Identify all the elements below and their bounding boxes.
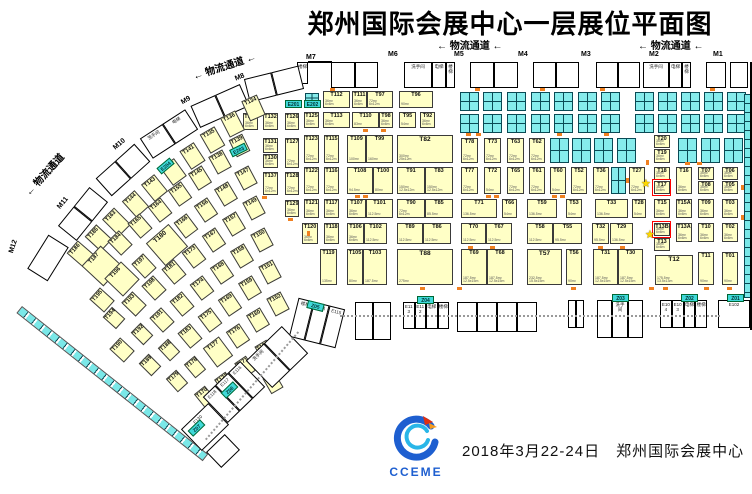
wall-room-cluster: 电梯 — [669, 62, 682, 88]
booth-t175[interactable]: T175 — [198, 307, 223, 333]
booth-t151[interactable]: T151 — [258, 259, 282, 284]
zone-badge-z03: Z03 — [612, 294, 629, 302]
standard-booth-block[interactable] — [594, 138, 613, 163]
booth-t176[interactable]: T176 — [226, 323, 250, 349]
room — [470, 62, 494, 88]
booth-t182[interactable]: T182 — [169, 291, 194, 317]
door-mark — [646, 160, 649, 165]
wall-room-cluster: 楼梯 — [682, 62, 691, 88]
logistics-channel-label: ← 物流通道 ← — [638, 37, 704, 52]
cceme-logo-text: CCEME — [388, 465, 444, 479]
room — [568, 300, 576, 328]
booth-t143[interactable]: T143 — [141, 174, 168, 202]
booth-t68[interactable]: T68187.5m² 12.5x15m — [487, 249, 513, 285]
booth-t178[interactable]: T178 — [184, 356, 206, 379]
room-cluster: E104E103电梯楼梯 — [660, 300, 707, 328]
standard-booth-block[interactable] — [635, 114, 654, 133]
booth-t72[interactable]: T7254m² — [484, 167, 501, 194]
booth-t125[interactable]: T12536m² 6x6m — [304, 112, 319, 128]
door-mark — [649, 287, 654, 290]
booth-t66[interactable]: T6654m² — [502, 199, 517, 218]
door-mark — [288, 218, 293, 221]
booth-t193[interactable]: T193 — [121, 291, 147, 316]
booth-t97[interactable]: T9772m² 6x12m — [367, 91, 393, 108]
door-mark — [420, 287, 425, 290]
highlight-star-icon: ★ — [641, 177, 651, 190]
room-E104: E104 — [660, 300, 672, 328]
booth-t89[interactable]: T89112.5m² — [397, 223, 423, 244]
booth-t90[interactable]: T9072m² 6x12m — [397, 199, 425, 218]
booth-t16[interactable]: T1636m² 6x6m — [676, 167, 692, 194]
booth-t107[interactable]: T10736m² 6x6m — [347, 199, 366, 218]
standard-booth-block[interactable] — [554, 92, 573, 111]
gate-label-m7: M7 — [306, 54, 316, 61]
room — [457, 302, 477, 332]
standard-booth-block[interactable] — [572, 138, 591, 163]
booth-t129[interactable]: T12936m² 6x6m — [285, 200, 299, 217]
booth-t149[interactable]: T149 — [242, 195, 266, 220]
booth-t157[interactable]: T157 — [222, 211, 246, 236]
gate-label-m10: M10 — [112, 137, 127, 151]
room — [517, 302, 537, 332]
door-mark — [307, 231, 310, 236]
logistics-channel-label: ← 物流通道 — [20, 149, 66, 198]
booth-t192[interactable]: T192 — [131, 323, 154, 346]
door-mark — [457, 287, 462, 290]
room — [355, 62, 379, 88]
wall-room-cluster: 电梯 — [432, 62, 446, 88]
room — [27, 235, 69, 282]
standard-booth-block[interactable] — [678, 138, 697, 163]
standard-booth-block[interactable] — [681, 114, 700, 133]
room-电梯: 电梯 — [432, 62, 446, 88]
standard-booth-block[interactable] — [483, 92, 502, 111]
booth-t02[interactable]: T0236m² 6x6m — [722, 223, 738, 242]
booth-t52[interactable]: T5272m² 6x12m — [571, 167, 587, 194]
floor-plan: 郑州国际会展中心一层展位平面图 CCEME 2018年3月22-24日 郑州国际… — [0, 0, 752, 494]
booth-t06[interactable]: T0636m² 6x6m — [722, 167, 738, 180]
booth-t123[interactable]: T12372m² 6x12m — [304, 135, 319, 163]
room — [373, 302, 391, 340]
booth-t63[interactable]: T6372m² 6x12m — [507, 138, 524, 163]
booth-t144[interactable]: T144 — [122, 190, 149, 218]
booth-t112[interactable]: T11236m² 6x6m — [323, 91, 350, 108]
booth-t65[interactable]: T6572m² 6x12m — [507, 167, 524, 194]
booth-t127[interactable]: T12772m² 6x12m — [285, 138, 299, 168]
booth-t188[interactable]: T188 — [158, 339, 181, 362]
door-mark — [598, 246, 603, 249]
room-cluster — [457, 302, 537, 332]
booth-t91[interactable]: T91150m² 12.5x12m — [397, 167, 425, 194]
booth-t82[interactable]: T82300m² 25x12m — [397, 135, 453, 163]
room-洗手间: 洗手间 — [404, 62, 432, 88]
door-mark — [475, 88, 480, 91]
booth-t122[interactable]: T12272m² 6x12m — [304, 167, 319, 194]
room — [628, 300, 643, 338]
zone-badge-z02: Z02 — [681, 294, 698, 302]
gate-label-m9: M9 — [180, 95, 192, 106]
highlight-box — [652, 179, 671, 196]
standard-booth-block[interactable] — [578, 114, 597, 133]
door-mark — [466, 133, 471, 136]
room-E102: E102 — [718, 300, 750, 328]
booth-t29[interactable]: T29136.5m² — [610, 223, 633, 244]
booth-t95[interactable]: T9554m² — [399, 112, 416, 128]
booth-t73[interactable]: T7372m² 6x12m — [484, 138, 501, 163]
wall-room-cluster — [470, 62, 518, 88]
door-mark — [685, 162, 690, 165]
booth-t62[interactable]: T6272m² 6x12m — [529, 138, 545, 163]
booth-t86[interactable]: T86112.5m² — [423, 223, 451, 244]
room — [497, 302, 517, 332]
wall-room-cluster — [730, 62, 748, 88]
booth-t116[interactable]: T11672m² 6x12m — [324, 167, 339, 194]
door-mark — [355, 195, 360, 198]
booth-t174[interactable]: T174 — [190, 275, 215, 301]
event-date-venue: 2018年3月22-24日 郑州国际会展中心 — [462, 440, 744, 461]
booth-t137[interactable]: T13772m² 6x12m — [263, 172, 278, 195]
door-mark — [330, 88, 335, 91]
booth-t120[interactable]: T12036m² 6x6m — [302, 223, 318, 244]
booth-t198[interactable]: T198 — [141, 275, 166, 301]
booth-t30[interactable]: T30187.5m² 12.5x15m — [618, 249, 643, 285]
zone-badge-z04: Z04 — [417, 296, 434, 304]
booth-t96[interactable]: T9690m² — [399, 91, 433, 108]
booth-t13a[interactable]: T13A36m² 6x6m — [676, 223, 692, 242]
booth-t100[interactable]: T10080m² — [373, 167, 393, 194]
booth-t15a[interactable]: T15A36m² 6x6m — [676, 199, 692, 218]
booth-t179[interactable]: T179 — [166, 370, 188, 393]
booth-t167[interactable]: T167 — [202, 227, 226, 253]
diag-wall-segment — [96, 144, 151, 197]
zone-badge-z01: Z01 — [727, 294, 744, 302]
room — [596, 62, 618, 88]
booth-t71[interactable]: T71136.5m² — [461, 199, 497, 218]
standard-booth-block[interactable] — [658, 92, 677, 111]
room — [477, 302, 497, 332]
standard-booth-block[interactable] — [704, 114, 723, 133]
room-E103: E103 — [672, 300, 684, 328]
gate-label-m2: M2 — [649, 51, 659, 58]
booth-t70[interactable]: T70112.5m² — [461, 223, 486, 244]
booth-t105[interactable]: T10580m² — [347, 249, 363, 285]
standard-booth-block[interactable] — [554, 114, 573, 133]
room — [533, 62, 556, 88]
room — [706, 62, 726, 88]
logistics-channel-label: ← 物流通道 ← — [437, 37, 503, 52]
booth-t83[interactable]: T83150m² 12.5x12m — [425, 167, 453, 194]
room-cluster — [355, 302, 391, 340]
booth-t118[interactable]: T11836m² 6x6m — [324, 223, 339, 244]
door-mark — [552, 195, 557, 198]
booth-t58[interactable]: T58112.5m² — [527, 223, 553, 244]
door-mark — [697, 162, 702, 165]
booth-t10[interactable]: T1036m² 6x6m — [698, 223, 714, 242]
booth-t168[interactable]: T168 — [210, 259, 234, 285]
booth-t147[interactable]: T147 — [234, 165, 258, 190]
standard-booth-block[interactable] — [578, 92, 597, 111]
booth-t56[interactable]: T5690m² — [566, 249, 582, 285]
booth-t184[interactable]: T184 — [107, 230, 132, 256]
standard-booth-block[interactable] — [460, 114, 479, 133]
booth-t115[interactable]: T11572m² 6x12m — [324, 135, 339, 163]
booth-t117[interactable]: T11736m² 6x6m — [324, 199, 339, 218]
room — [618, 62, 640, 88]
booth-t05[interactable]: T0536m² 6x6m — [722, 181, 738, 194]
corridor-chain — [340, 315, 720, 317]
booth-t106[interactable]: T10636m² 6x6m — [347, 223, 364, 244]
booth-t09[interactable]: T0936m² 6x6m — [698, 199, 714, 218]
door-mark — [560, 195, 565, 198]
wall-room-cluster: 洗手间 — [404, 62, 432, 88]
room-楼梯: 楼梯 — [695, 300, 707, 328]
room-楼梯: 楼梯 — [446, 62, 455, 88]
door-mark — [727, 287, 732, 290]
booth-t102[interactable]: T102112.5m² — [364, 223, 387, 244]
gate-label-m4: M4 — [518, 51, 528, 58]
booth-t159[interactable]: T159 — [238, 275, 262, 300]
room-洗手间: 洗手间 — [612, 300, 627, 338]
booth-t190[interactable]: T190 — [109, 337, 135, 362]
door-mark — [486, 195, 491, 198]
booth-t109[interactable]: T109100m² — [347, 135, 366, 163]
zone-badge-e201: E201 — [285, 100, 302, 108]
standard-booth-block[interactable] — [611, 167, 626, 194]
door-mark — [620, 246, 625, 249]
booth-t119[interactable]: T119135m² — [320, 249, 337, 285]
wall-room-cluster — [331, 62, 378, 88]
booth-t36[interactable]: T3672m² 6x12m — [593, 167, 609, 194]
gate-label-m11: M11 — [56, 196, 70, 211]
booth-t92[interactable]: T9236m² 6x6m — [420, 112, 435, 128]
room-cluster — [568, 300, 584, 328]
wall-room-cluster — [706, 62, 726, 88]
booth-t85[interactable]: T8585.5m² — [425, 199, 453, 218]
gate-label-m6: M6 — [388, 51, 398, 58]
booth-t08[interactable]: T0836m² 6x6m — [698, 181, 714, 194]
door-mark — [540, 88, 545, 91]
booth-t12[interactable]: T12175.5m² 13.5x13m — [655, 255, 693, 285]
standard-booth-block[interactable] — [460, 92, 479, 111]
door-mark — [363, 195, 368, 198]
booth-t113[interactable]: T11336m² 6x6m — [323, 112, 350, 128]
door-mark — [557, 133, 562, 136]
gate-label-m3: M3 — [581, 51, 591, 58]
standard-booth-block[interactable] — [531, 114, 550, 133]
booth-t32[interactable]: T3295.5m² — [592, 223, 609, 244]
booth-t103[interactable]: T103187.5m² — [363, 249, 387, 285]
booth-t13[interactable]: T1336m² 6x6m — [654, 238, 670, 251]
room — [597, 300, 612, 338]
door-mark — [381, 129, 386, 132]
booth-t101[interactable]: T101112.5m² — [366, 199, 393, 218]
room-楼梯: 楼梯 — [682, 62, 691, 88]
booth-t53[interactable]: T5354m² — [566, 199, 582, 218]
booth-t61[interactable]: T6172m² 6x12m — [529, 167, 545, 194]
booth-t155[interactable]: T155 — [168, 181, 193, 207]
booth-t160[interactable]: T160 — [246, 307, 270, 332]
wall-room-cluster: 洗手间 — [643, 62, 669, 88]
door-mark — [663, 287, 668, 290]
standard-booth-block[interactable] — [507, 114, 526, 133]
door-mark — [571, 287, 576, 290]
diag-wall-segment — [27, 235, 69, 282]
booth-t164[interactable]: T164 — [148, 197, 173, 223]
booth-t189[interactable]: T189 — [139, 354, 162, 377]
booth-t20[interactable]: T2036m² 6x6m — [654, 135, 670, 148]
booth-t130[interactable]: T13036m² 6x6m — [263, 154, 278, 168]
booth-t03[interactable]: T0336m² 6x6m — [722, 199, 738, 218]
door-mark — [494, 195, 499, 198]
booth-t01[interactable]: T0190m² — [722, 252, 738, 285]
standard-booth-block[interactable] — [601, 114, 620, 133]
room — [271, 66, 304, 96]
standard-booth-block[interactable] — [704, 92, 723, 111]
booth-t108[interactable]: T10894.5m² — [347, 167, 373, 194]
booth-t78[interactable]: T7872m² 6x12m — [461, 138, 478, 163]
room — [556, 62, 579, 88]
booth-t28[interactable]: T2854m² — [632, 199, 646, 218]
door-mark — [626, 178, 629, 183]
room — [355, 302, 373, 340]
booth-t132[interactable]: T13236m² 6x6m — [263, 113, 278, 130]
wall-room-cluster — [596, 62, 640, 88]
booth-t191[interactable]: T191 — [149, 307, 174, 333]
gate-label-m5: M5 — [454, 51, 464, 58]
booth-t111[interactable]: T11136m² 6x6m — [352, 91, 367, 108]
standard-booth-block[interactable] — [531, 92, 550, 111]
door-mark — [741, 215, 744, 220]
door-mark — [476, 133, 481, 136]
booth-t98[interactable]: T9836m² 6x6m — [379, 112, 393, 128]
booth-t110[interactable]: T11083m² — [352, 112, 379, 128]
room — [576, 300, 584, 328]
booth-t158[interactable]: T158 — [230, 243, 254, 268]
booth-t169[interactable]: T169 — [218, 291, 242, 317]
booth-t77[interactable]: T7772m² 6x12m — [461, 167, 478, 194]
standard-booth-block[interactable] — [635, 92, 654, 111]
booth-t19[interactable]: T1936m² 6x6m — [654, 149, 670, 163]
door-mark — [604, 133, 609, 136]
gate-label-m1: M1 — [713, 51, 723, 58]
standard-booth-block[interactable] — [617, 138, 636, 163]
wall-line — [308, 61, 332, 63]
booth-t31[interactable]: T31187.5m² 12.5x15m — [593, 249, 618, 285]
door-mark — [363, 129, 368, 132]
room — [494, 62, 518, 88]
booth-t131[interactable]: T13136m² 6x6m — [263, 138, 278, 153]
booth-t15[interactable]: T1536m² 6x6m — [654, 199, 670, 218]
standard-booth-block[interactable] — [681, 92, 700, 111]
booth-t99[interactable]: T99160m² — [366, 135, 393, 163]
booth-t148[interactable]: T148 — [214, 181, 238, 206]
booth-t150[interactable]: T150 — [250, 227, 274, 252]
booth-t55[interactable]: T5595.5m² — [553, 223, 582, 244]
door-mark — [710, 88, 715, 91]
booth-t126[interactable]: T12636m² 6x6m — [285, 113, 299, 130]
room — [730, 62, 748, 88]
cceme-logo-mark — [393, 412, 439, 462]
door-mark — [490, 246, 495, 249]
booth-t156[interactable]: T156 — [194, 197, 218, 223]
cceme-logo: CCEME — [388, 412, 444, 482]
standard-booth-block[interactable] — [601, 92, 620, 111]
room-cluster: E102 — [718, 300, 750, 328]
booth-t165[interactable]: T165 — [127, 213, 152, 239]
standard-booth-block[interactable] — [507, 92, 526, 111]
booth-t67[interactable]: T67112.5m² — [486, 223, 512, 244]
booth-t183[interactable]: T183 — [177, 323, 202, 349]
standard-booth-block[interactable] — [701, 138, 720, 163]
booth-t121[interactable]: T12136m² 6x6m — [304, 199, 319, 218]
standard-booth-block[interactable] — [658, 114, 677, 133]
gate-label-m12: M12 — [8, 239, 19, 254]
booth-t33[interactable]: T33136.5m² — [595, 199, 628, 218]
door-mark — [468, 246, 473, 249]
booth-t128[interactable]: T12872m² 6x12m — [285, 172, 299, 195]
door-mark — [704, 287, 709, 290]
booth-t177[interactable]: T177 — [203, 336, 233, 367]
booth-t88[interactable]: T88275m² — [397, 249, 453, 285]
standard-booth-block[interactable] — [483, 114, 502, 133]
zone-badge-e202: E202 — [304, 100, 321, 108]
wall-room-cluster: 楼梯 — [446, 62, 455, 88]
booth-t57[interactable]: T57232.5m² 15.5x15m — [527, 249, 562, 285]
standard-booth-block[interactable] — [724, 138, 743, 163]
room-cluster: 洗手间 — [597, 300, 643, 338]
booth-t152[interactable]: T152 — [266, 291, 290, 316]
room-洗手间: 洗手间 — [643, 62, 669, 88]
page-title: 郑州国际会展中心一层展位平面图 — [270, 4, 750, 41]
booth-t60[interactable]: T6054m² — [550, 167, 566, 194]
highlight-star-icon: ★ — [645, 228, 655, 241]
booth-t59[interactable]: T59136.5m² — [527, 199, 557, 218]
door-mark — [741, 185, 744, 190]
room-电梯: 电梯 — [669, 62, 682, 88]
booth-t11[interactable]: T1190m² — [698, 252, 714, 285]
wall-room-cluster — [533, 62, 579, 88]
room-电梯: 电梯 — [684, 300, 696, 328]
door-mark — [600, 88, 605, 91]
booth-t07[interactable]: T0736m² 6x6m — [698, 167, 714, 180]
booth-t69[interactable]: T69187.5m² 12.5x15m — [461, 249, 487, 285]
door-mark — [262, 196, 267, 199]
room — [331, 62, 355, 88]
standard-booth-block[interactable] — [550, 138, 569, 163]
